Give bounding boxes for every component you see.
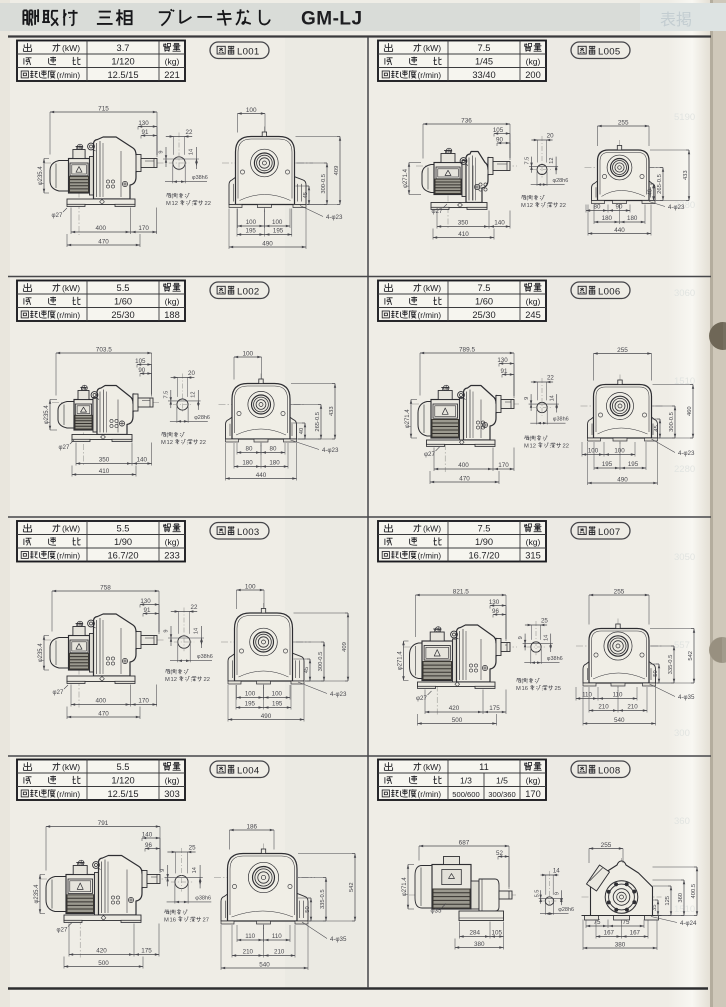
svg-text:380: 380 bbox=[474, 941, 485, 948]
svg-text:L006: L006 bbox=[598, 287, 621, 298]
svg-text:(kW): (kW) bbox=[423, 283, 441, 293]
svg-text:25: 25 bbox=[189, 845, 196, 852]
svg-text:φ28h6: φ28h6 bbox=[553, 178, 569, 184]
svg-text:360: 360 bbox=[674, 816, 690, 827]
svg-text:420: 420 bbox=[96, 948, 107, 955]
svg-text:(kW): (kW) bbox=[62, 43, 80, 53]
svg-text:195: 195 bbox=[246, 228, 257, 235]
svg-text:300/360: 300/360 bbox=[488, 790, 515, 799]
svg-text:(kg): (kg) bbox=[526, 296, 541, 306]
svg-text:14: 14 bbox=[553, 868, 560, 875]
svg-text:789.5: 789.5 bbox=[459, 346, 475, 353]
svg-text:M: M bbox=[161, 440, 166, 446]
svg-text:210: 210 bbox=[274, 949, 285, 956]
svg-text:35: 35 bbox=[652, 905, 658, 911]
svg-text:3060: 3060 bbox=[674, 288, 695, 299]
svg-text:703.5: 703.5 bbox=[96, 346, 112, 353]
svg-text:420: 420 bbox=[449, 705, 460, 712]
svg-text:12: 12 bbox=[549, 157, 555, 163]
svg-text:195: 195 bbox=[602, 461, 613, 468]
svg-text:(kW): (kW) bbox=[423, 524, 441, 534]
svg-text:400: 400 bbox=[96, 698, 107, 705]
svg-text:(kW): (kW) bbox=[62, 762, 80, 772]
svg-text:φ27: φ27 bbox=[59, 444, 70, 451]
svg-text:470: 470 bbox=[98, 710, 109, 717]
svg-text:4-φ23: 4-φ23 bbox=[330, 691, 347, 698]
svg-text:φ38h6: φ38h6 bbox=[197, 654, 213, 660]
svg-text:96: 96 bbox=[492, 608, 499, 615]
svg-text:130: 130 bbox=[140, 598, 151, 605]
svg-text:1/60: 1/60 bbox=[114, 296, 132, 306]
svg-text:100: 100 bbox=[245, 691, 256, 698]
svg-text:16: 16 bbox=[522, 686, 528, 692]
svg-text:(kg): (kg) bbox=[165, 56, 180, 66]
svg-text:(kW): (kW) bbox=[423, 762, 441, 772]
svg-text:140: 140 bbox=[494, 220, 505, 227]
svg-text:12: 12 bbox=[167, 440, 173, 446]
svg-text:105: 105 bbox=[492, 930, 503, 937]
svg-text:25/30: 25/30 bbox=[111, 310, 134, 320]
svg-text:1/120: 1/120 bbox=[111, 56, 134, 66]
svg-text:25/30: 25/30 bbox=[472, 310, 495, 320]
svg-text:表掲: 表掲 bbox=[660, 11, 692, 29]
svg-text:φ28h6: φ28h6 bbox=[558, 907, 574, 913]
svg-text:557: 557 bbox=[674, 640, 690, 651]
svg-text:3050: 3050 bbox=[674, 552, 695, 563]
svg-text:200: 200 bbox=[525, 70, 541, 80]
svg-text:(r/min): (r/min) bbox=[57, 552, 81, 561]
svg-text:470: 470 bbox=[98, 238, 109, 245]
svg-text:5190: 5190 bbox=[674, 112, 695, 123]
svg-text:50: 50 bbox=[305, 906, 311, 912]
svg-text:GM-LJ: GM-LJ bbox=[301, 9, 363, 30]
svg-text:300-0.5: 300-0.5 bbox=[669, 412, 675, 432]
svg-text:167: 167 bbox=[630, 930, 641, 937]
svg-text:433: 433 bbox=[329, 406, 335, 416]
svg-text:80: 80 bbox=[270, 446, 277, 453]
svg-text:14: 14 bbox=[192, 867, 198, 873]
svg-text:12: 12 bbox=[171, 677, 177, 683]
svg-text:9: 9 bbox=[524, 397, 530, 400]
svg-text:300-0.5: 300-0.5 bbox=[321, 174, 327, 194]
svg-text:25: 25 bbox=[541, 618, 548, 625]
svg-text:100: 100 bbox=[588, 448, 599, 455]
svg-text:9: 9 bbox=[160, 869, 166, 872]
svg-text:233: 233 bbox=[164, 550, 180, 560]
svg-text:5.5: 5.5 bbox=[117, 523, 130, 533]
svg-text:(kW): (kW) bbox=[62, 283, 80, 293]
svg-text:(kg): (kg) bbox=[165, 537, 180, 547]
svg-text:130: 130 bbox=[489, 599, 500, 606]
svg-text:25: 25 bbox=[555, 686, 561, 692]
svg-text:542: 542 bbox=[349, 882, 355, 892]
svg-text:M: M bbox=[166, 201, 171, 207]
svg-text:φ235.4: φ235.4 bbox=[34, 884, 40, 904]
svg-text:100: 100 bbox=[272, 219, 283, 226]
svg-text:170: 170 bbox=[138, 225, 149, 232]
svg-text:540: 540 bbox=[614, 717, 625, 724]
svg-text:(r/min): (r/min) bbox=[57, 71, 81, 80]
svg-text:22: 22 bbox=[563, 444, 569, 450]
svg-text:L005: L005 bbox=[598, 47, 621, 58]
svg-text:186: 186 bbox=[246, 823, 257, 830]
svg-text:(r/min): (r/min) bbox=[57, 311, 81, 320]
svg-text:315: 315 bbox=[525, 550, 541, 560]
svg-text:9: 9 bbox=[518, 636, 524, 639]
svg-text:(kW): (kW) bbox=[62, 524, 80, 534]
svg-text:22: 22 bbox=[547, 375, 554, 382]
svg-text:22: 22 bbox=[200, 440, 206, 446]
svg-text:100: 100 bbox=[245, 583, 256, 590]
svg-text:φ28h6: φ28h6 bbox=[194, 415, 210, 421]
svg-text:40: 40 bbox=[648, 189, 654, 195]
svg-text:180: 180 bbox=[269, 460, 280, 467]
svg-text:195: 195 bbox=[245, 701, 256, 708]
svg-text:7.5: 7.5 bbox=[478, 523, 491, 533]
svg-text:91: 91 bbox=[144, 607, 151, 614]
svg-text:140: 140 bbox=[142, 831, 153, 838]
svg-text:4-φ23: 4-φ23 bbox=[326, 214, 343, 221]
svg-text:350: 350 bbox=[99, 457, 110, 464]
svg-text:27: 27 bbox=[203, 918, 209, 924]
svg-text:L003: L003 bbox=[237, 527, 260, 538]
svg-text:380: 380 bbox=[615, 941, 626, 948]
svg-text:687: 687 bbox=[459, 839, 470, 846]
svg-text:L007: L007 bbox=[598, 527, 621, 538]
svg-text:φ27: φ27 bbox=[416, 695, 427, 702]
svg-text:758: 758 bbox=[100, 584, 111, 591]
svg-text:φ271.4: φ271.4 bbox=[398, 651, 404, 671]
svg-text:490: 490 bbox=[262, 240, 273, 247]
svg-text:33/40: 33/40 bbox=[472, 70, 495, 80]
svg-text:φ38h6: φ38h6 bbox=[553, 417, 569, 423]
svg-text:9: 9 bbox=[159, 150, 165, 153]
svg-text:180: 180 bbox=[242, 460, 253, 467]
svg-text:M: M bbox=[164, 918, 169, 924]
svg-text:100: 100 bbox=[242, 350, 253, 357]
svg-text:170: 170 bbox=[498, 462, 509, 469]
svg-text:22: 22 bbox=[560, 203, 566, 209]
svg-text:791: 791 bbox=[98, 820, 109, 827]
svg-text:14: 14 bbox=[189, 149, 195, 155]
svg-text:400.5: 400.5 bbox=[691, 884, 697, 899]
svg-text:φ235.4: φ235.4 bbox=[38, 166, 44, 186]
svg-text:542: 542 bbox=[688, 651, 694, 661]
svg-text:91: 91 bbox=[142, 129, 149, 136]
svg-text:4-φ24: 4-φ24 bbox=[680, 920, 697, 927]
svg-text:490: 490 bbox=[261, 713, 272, 720]
svg-text:11: 11 bbox=[479, 762, 489, 772]
svg-text:335-0.5: 335-0.5 bbox=[668, 655, 674, 675]
svg-text:410: 410 bbox=[458, 231, 469, 238]
svg-text:221: 221 bbox=[164, 70, 180, 80]
svg-text:736: 736 bbox=[461, 117, 472, 124]
svg-text:105: 105 bbox=[135, 358, 146, 365]
svg-text:50: 50 bbox=[653, 670, 659, 676]
svg-text:12.5/15: 12.5/15 bbox=[107, 789, 138, 799]
svg-text:821.5: 821.5 bbox=[453, 588, 469, 595]
svg-text:16: 16 bbox=[170, 918, 176, 924]
svg-text:(r/min): (r/min) bbox=[418, 552, 442, 561]
svg-text:16.7/20: 16.7/20 bbox=[107, 550, 138, 560]
svg-text:409: 409 bbox=[334, 166, 340, 176]
svg-text:110: 110 bbox=[582, 692, 592, 699]
svg-text:3.7: 3.7 bbox=[117, 43, 130, 53]
svg-text:14: 14 bbox=[543, 635, 549, 641]
svg-text:1/45: 1/45 bbox=[475, 56, 493, 66]
svg-text:360: 360 bbox=[678, 893, 684, 903]
svg-text:96: 96 bbox=[145, 842, 152, 849]
svg-text:440: 440 bbox=[614, 227, 625, 234]
svg-text:1/120: 1/120 bbox=[111, 775, 134, 785]
svg-text:5.5: 5.5 bbox=[117, 283, 130, 293]
svg-text:180: 180 bbox=[602, 215, 613, 222]
svg-text:12: 12 bbox=[530, 444, 536, 450]
svg-text:75: 75 bbox=[594, 919, 601, 926]
svg-text:188: 188 bbox=[164, 310, 180, 320]
svg-text:22: 22 bbox=[204, 677, 210, 683]
svg-text:φ271.4: φ271.4 bbox=[403, 168, 409, 188]
svg-text:φ38h6: φ38h6 bbox=[195, 895, 211, 901]
svg-text:5.5: 5.5 bbox=[117, 762, 130, 772]
svg-text:105: 105 bbox=[493, 127, 504, 134]
svg-text:210: 210 bbox=[627, 704, 638, 711]
svg-text:(r/min): (r/min) bbox=[418, 71, 442, 80]
svg-text:90: 90 bbox=[496, 136, 503, 143]
svg-text:(kg): (kg) bbox=[165, 296, 180, 306]
svg-text:265-0.5: 265-0.5 bbox=[657, 174, 663, 194]
svg-text:440: 440 bbox=[256, 472, 267, 479]
svg-text:45: 45 bbox=[303, 192, 309, 198]
svg-text:22: 22 bbox=[205, 201, 211, 207]
svg-text:φ27: φ27 bbox=[52, 212, 63, 219]
svg-text:300-0.5: 300-0.5 bbox=[318, 652, 324, 672]
svg-text:22: 22 bbox=[191, 604, 198, 611]
svg-text:180: 180 bbox=[627, 215, 638, 222]
svg-text:12.5/15: 12.5/15 bbox=[107, 70, 138, 80]
svg-text:φ27: φ27 bbox=[57, 927, 68, 934]
svg-text:14: 14 bbox=[194, 628, 200, 634]
svg-text:170: 170 bbox=[525, 789, 541, 799]
svg-text:16.7/20: 16.7/20 bbox=[468, 550, 499, 560]
svg-text:4-φ35: 4-φ35 bbox=[678, 694, 695, 701]
svg-text:255: 255 bbox=[614, 588, 625, 595]
svg-text:715: 715 bbox=[98, 105, 109, 112]
svg-text:(kg): (kg) bbox=[526, 56, 541, 66]
svg-text:460: 460 bbox=[687, 406, 693, 416]
svg-text:4-φ23: 4-φ23 bbox=[668, 204, 685, 211]
svg-text:φ235.4: φ235.4 bbox=[44, 405, 50, 425]
svg-text:410: 410 bbox=[99, 468, 110, 475]
svg-text:167: 167 bbox=[604, 930, 615, 937]
svg-text:1/60: 1/60 bbox=[475, 296, 493, 306]
svg-text:1/5: 1/5 bbox=[496, 775, 508, 785]
svg-text:255: 255 bbox=[618, 119, 629, 126]
svg-text:170: 170 bbox=[138, 698, 149, 705]
svg-text:φ38h6: φ38h6 bbox=[547, 656, 563, 662]
svg-text:φ235.4: φ235.4 bbox=[38, 643, 44, 663]
svg-text:φ35: φ35 bbox=[431, 908, 442, 915]
svg-text:M: M bbox=[521, 203, 526, 209]
svg-text:175: 175 bbox=[489, 705, 500, 712]
svg-text:130: 130 bbox=[138, 120, 149, 127]
svg-text:409: 409 bbox=[342, 642, 348, 652]
svg-text:20: 20 bbox=[547, 133, 554, 140]
svg-text:9: 9 bbox=[164, 629, 170, 632]
svg-text:75: 75 bbox=[623, 919, 630, 926]
svg-text:130: 130 bbox=[497, 357, 508, 364]
svg-text:110: 110 bbox=[245, 933, 255, 940]
svg-text:12: 12 bbox=[527, 203, 533, 209]
svg-text:255: 255 bbox=[617, 347, 628, 354]
svg-text:80: 80 bbox=[246, 446, 253, 453]
svg-text:300: 300 bbox=[674, 728, 690, 739]
svg-text:12: 12 bbox=[191, 391, 197, 397]
svg-text:400: 400 bbox=[96, 225, 107, 232]
svg-text:100: 100 bbox=[246, 107, 257, 114]
svg-text:110: 110 bbox=[272, 933, 282, 940]
svg-text:7.5: 7.5 bbox=[525, 157, 531, 165]
svg-text:45: 45 bbox=[304, 667, 310, 673]
svg-text:12: 12 bbox=[172, 201, 178, 207]
svg-text:210: 210 bbox=[598, 704, 609, 711]
svg-text:20: 20 bbox=[188, 370, 195, 377]
svg-text:140: 140 bbox=[137, 457, 148, 464]
svg-text:4-φ23: 4-φ23 bbox=[678, 450, 695, 457]
svg-text:90: 90 bbox=[138, 367, 145, 374]
svg-text:195: 195 bbox=[273, 228, 284, 235]
svg-text:L008: L008 bbox=[598, 766, 621, 777]
svg-text:9: 9 bbox=[555, 892, 561, 895]
svg-text:1/90: 1/90 bbox=[114, 537, 132, 547]
svg-text:5.5: 5.5 bbox=[534, 890, 540, 898]
svg-text:265-0.5: 265-0.5 bbox=[315, 412, 321, 432]
svg-text:M: M bbox=[516, 686, 521, 692]
svg-text:245: 245 bbox=[525, 310, 541, 320]
svg-text:(r/min): (r/min) bbox=[57, 790, 81, 799]
svg-text:L004: L004 bbox=[237, 766, 260, 777]
svg-text:500/600: 500/600 bbox=[452, 790, 479, 799]
svg-text:(kg): (kg) bbox=[526, 537, 541, 547]
svg-text:4-φ23: 4-φ23 bbox=[322, 447, 339, 454]
svg-text:2280: 2280 bbox=[674, 464, 695, 475]
svg-text:(kg): (kg) bbox=[526, 775, 541, 785]
svg-text:350: 350 bbox=[458, 220, 469, 227]
svg-text:540: 540 bbox=[259, 961, 270, 968]
svg-text:45: 45 bbox=[654, 425, 660, 431]
svg-text:1/90: 1/90 bbox=[475, 537, 493, 547]
svg-text:500: 500 bbox=[452, 717, 463, 724]
svg-text:(kg): (kg) bbox=[165, 775, 180, 785]
svg-text:(r/min): (r/min) bbox=[418, 311, 442, 320]
svg-text:100: 100 bbox=[272, 691, 283, 698]
svg-text:433: 433 bbox=[683, 170, 689, 180]
svg-text:91: 91 bbox=[501, 368, 508, 375]
svg-text:80: 80 bbox=[594, 204, 601, 211]
svg-text:1/3: 1/3 bbox=[460, 775, 472, 785]
svg-text:335-0.5: 335-0.5 bbox=[320, 889, 326, 909]
svg-text:40: 40 bbox=[299, 428, 305, 434]
svg-text:284: 284 bbox=[470, 930, 481, 937]
svg-text:(kW): (kW) bbox=[423, 43, 441, 53]
svg-text:490: 490 bbox=[617, 476, 628, 483]
svg-text:125: 125 bbox=[665, 896, 671, 906]
svg-text:14: 14 bbox=[549, 395, 555, 401]
svg-text:195: 195 bbox=[628, 461, 639, 468]
svg-text:52: 52 bbox=[496, 850, 503, 857]
svg-text:400: 400 bbox=[458, 462, 469, 469]
svg-text:175: 175 bbox=[141, 948, 152, 955]
svg-text:22: 22 bbox=[186, 129, 193, 136]
svg-text:L002: L002 bbox=[237, 287, 260, 298]
svg-text:M: M bbox=[165, 677, 170, 683]
svg-text:100: 100 bbox=[246, 219, 257, 226]
svg-text:303: 303 bbox=[164, 789, 180, 799]
svg-text:M: M bbox=[524, 444, 529, 450]
svg-text:210: 210 bbox=[243, 949, 254, 956]
svg-text:195: 195 bbox=[272, 701, 283, 708]
svg-text:255: 255 bbox=[601, 842, 612, 849]
svg-text:L001: L001 bbox=[237, 47, 260, 58]
svg-text:φ271.4: φ271.4 bbox=[402, 877, 408, 897]
svg-text:500: 500 bbox=[98, 960, 109, 967]
svg-text:φ38h6: φ38h6 bbox=[192, 175, 208, 181]
svg-text:7.5: 7.5 bbox=[478, 283, 491, 293]
svg-text:4-φ35: 4-φ35 bbox=[330, 936, 347, 943]
svg-text:φ27: φ27 bbox=[53, 689, 64, 696]
svg-text:7.5: 7.5 bbox=[478, 43, 491, 53]
svg-text:1510: 1510 bbox=[674, 376, 695, 387]
svg-text:(r/min): (r/min) bbox=[418, 790, 442, 799]
svg-text:7.5: 7.5 bbox=[164, 391, 170, 399]
svg-text:φ271.4: φ271.4 bbox=[405, 409, 411, 429]
svg-text:470: 470 bbox=[459, 475, 470, 482]
